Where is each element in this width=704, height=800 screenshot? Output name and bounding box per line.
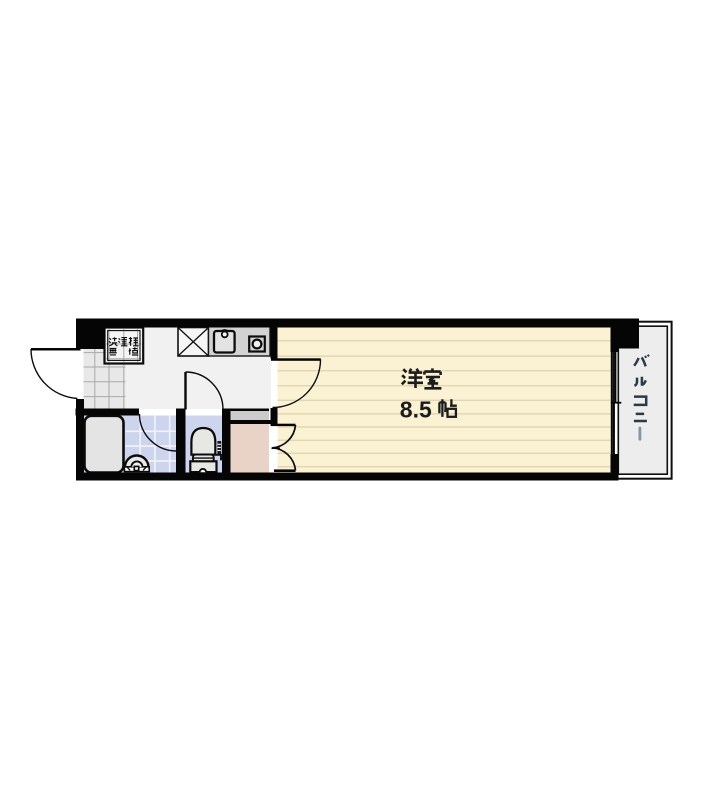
svg-text:8.5: 8.5 xyxy=(400,396,432,422)
